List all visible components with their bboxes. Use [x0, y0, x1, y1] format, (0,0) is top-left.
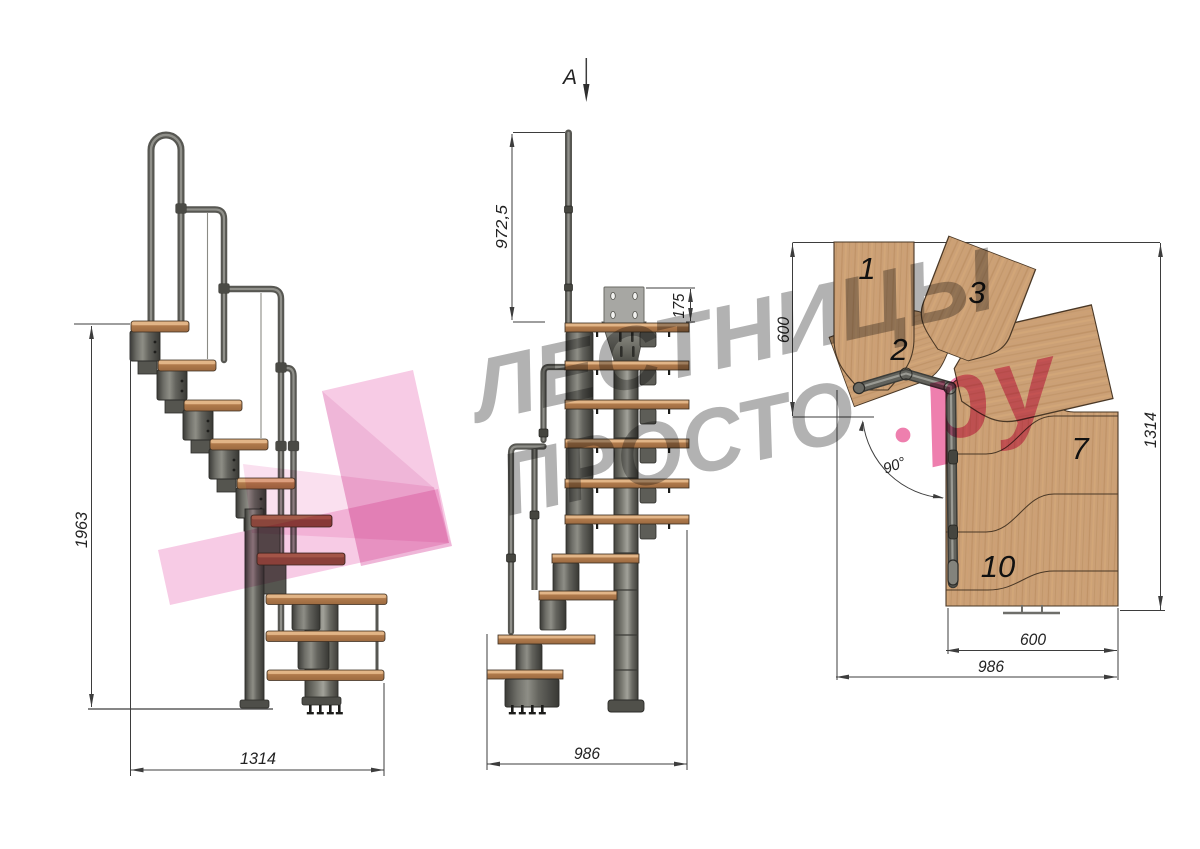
svg-text:1314: 1314	[1142, 412, 1160, 448]
svg-text:986: 986	[978, 658, 1005, 676]
svg-text:7: 7	[1071, 431, 1090, 466]
svg-text:972,5: 972,5	[494, 205, 511, 249]
svg-text:A: A	[561, 66, 577, 89]
svg-text:10: 10	[981, 549, 1015, 584]
svg-text:1963: 1963	[73, 511, 91, 548]
svg-text:986: 986	[574, 745, 601, 763]
svg-text:1314: 1314	[240, 750, 276, 768]
svg-text:600: 600	[1020, 631, 1047, 649]
